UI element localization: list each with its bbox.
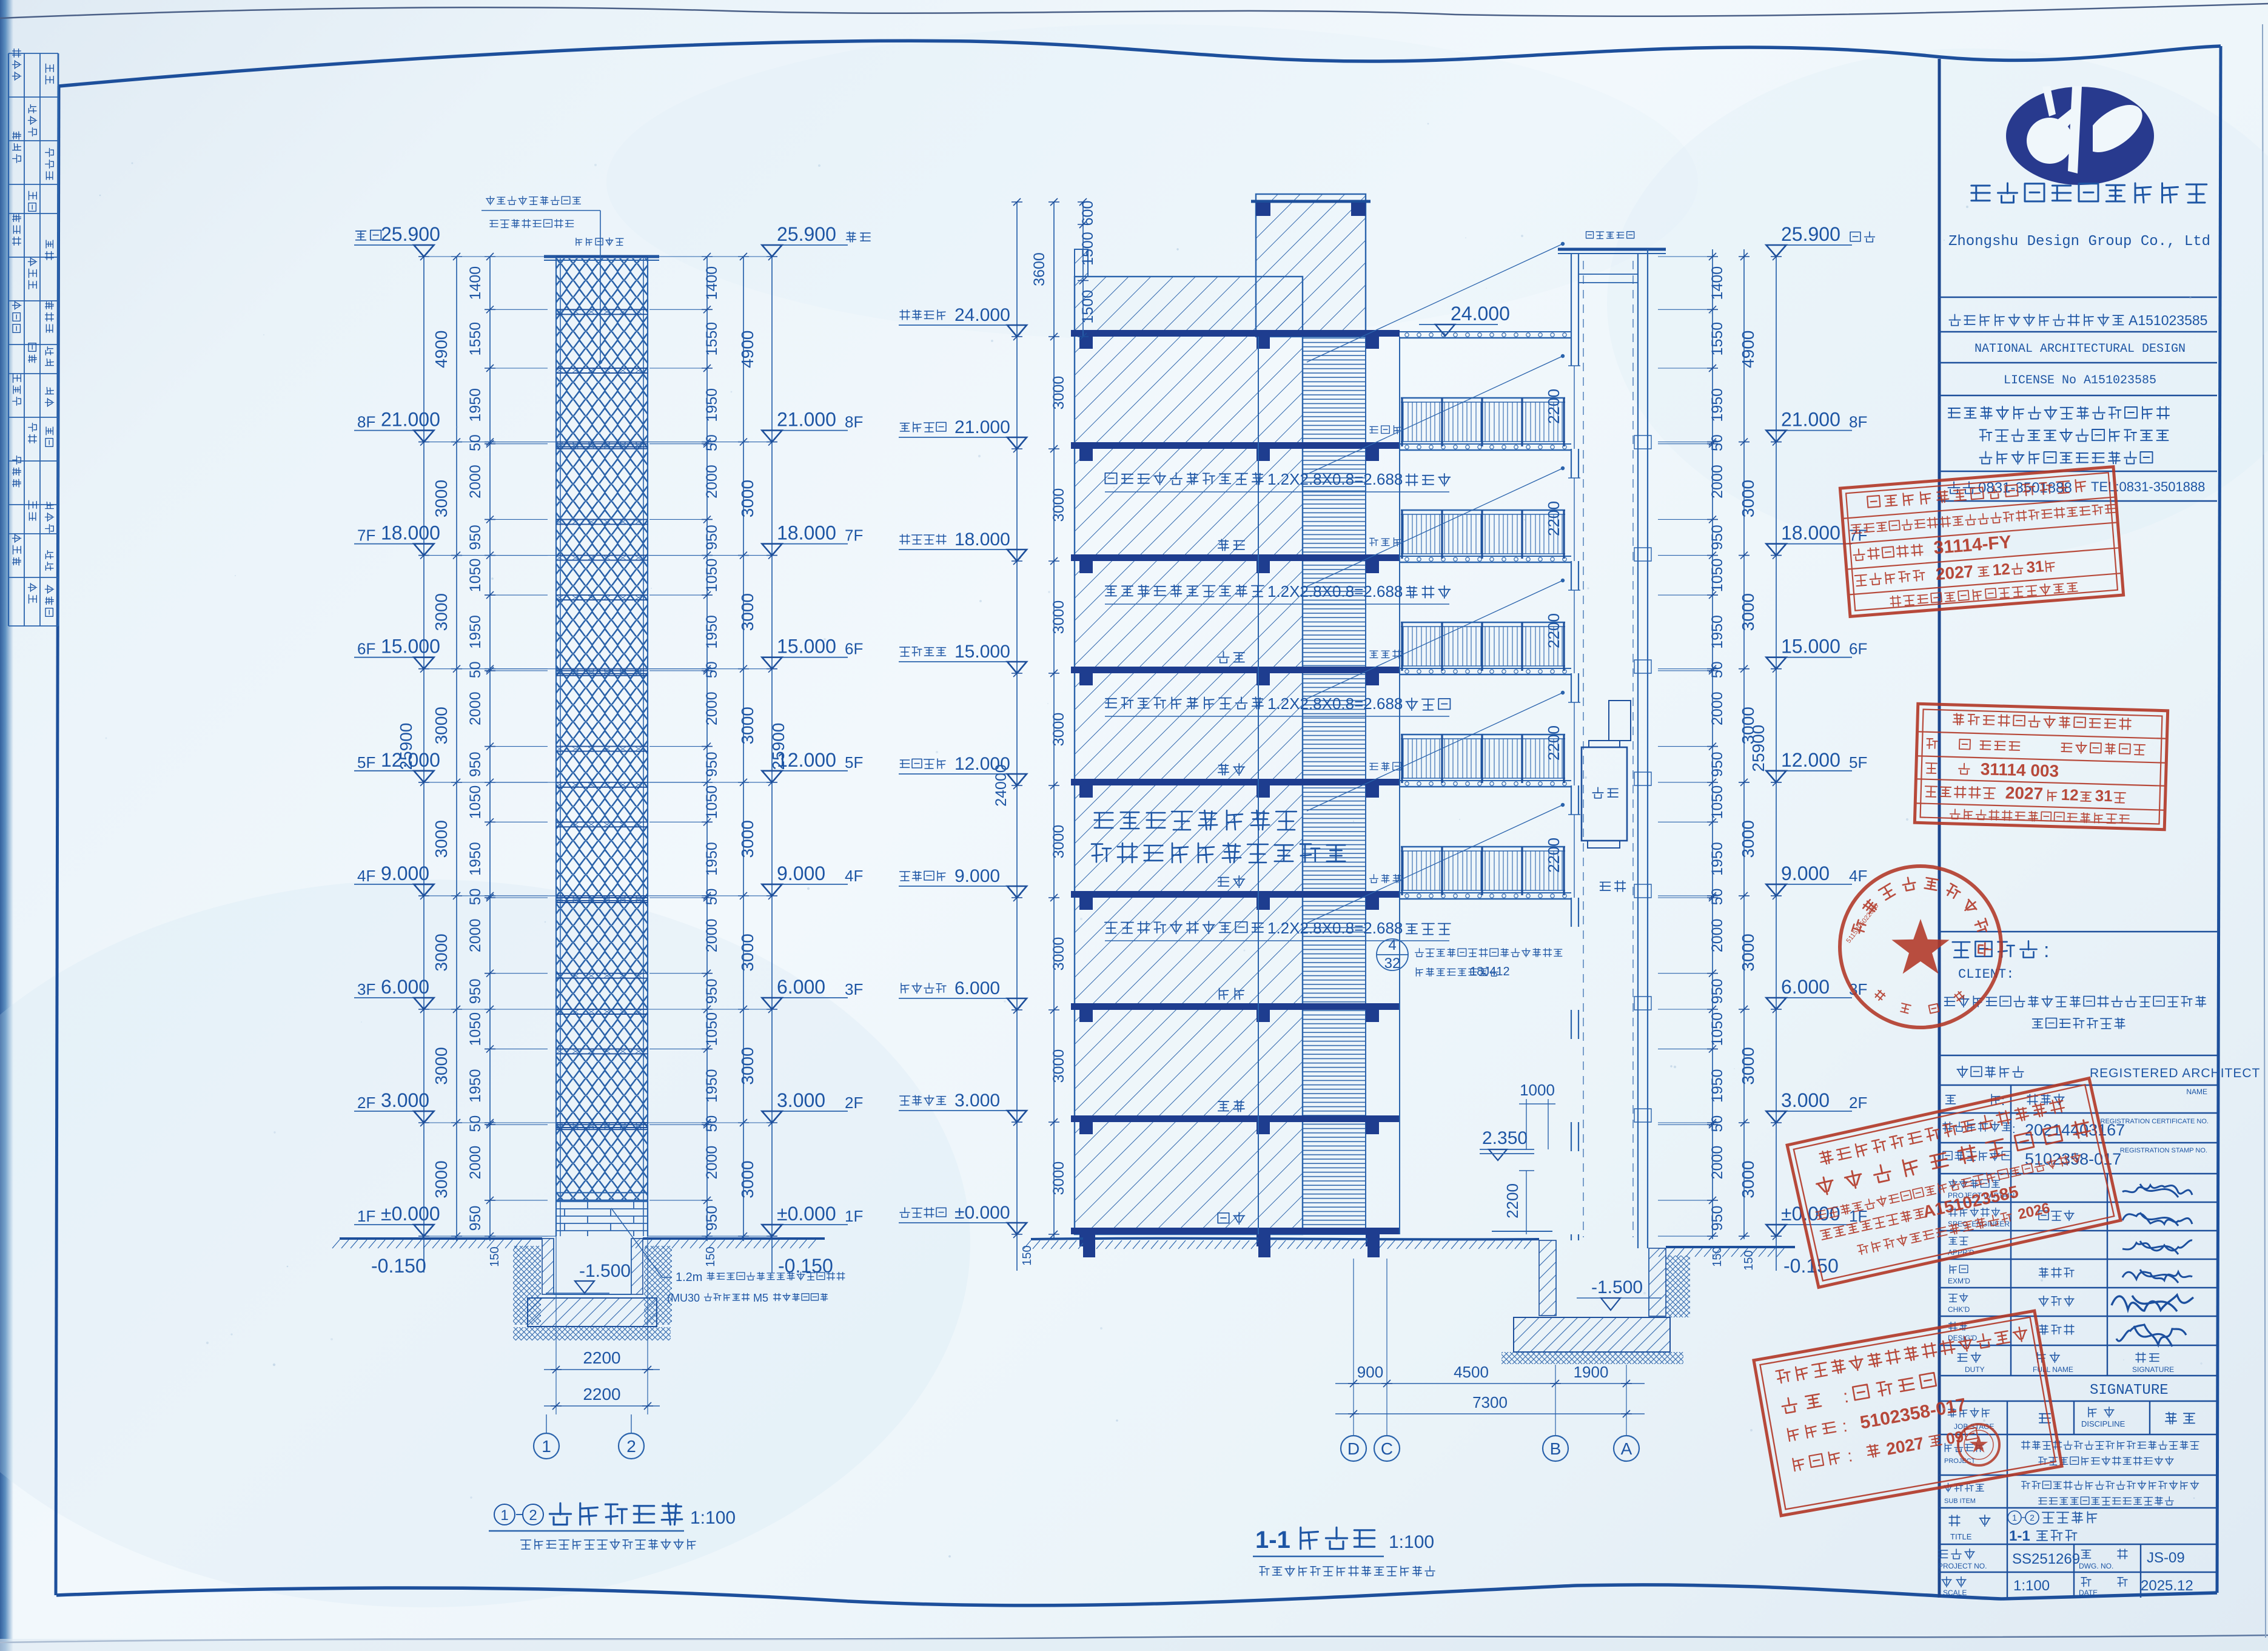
svg-text:1950: 1950 <box>467 388 484 422</box>
svg-text:24.000: 24.000 <box>955 305 1010 325</box>
svg-text:3000: 3000 <box>1050 1049 1067 1083</box>
svg-text:9.000: 9.000 <box>1781 862 1830 884</box>
svg-text:2027: 2027 <box>1885 1433 1925 1458</box>
svg-text:2027: 2027 <box>1935 562 1974 583</box>
svg-text:5F: 5F <box>357 753 375 772</box>
svg-text:8F: 8F <box>845 413 863 431</box>
svg-text:3000: 3000 <box>738 820 757 858</box>
svg-text:2200: 2200 <box>1545 501 1563 536</box>
svg-text:3F: 3F <box>357 980 375 998</box>
svg-text:2: 2 <box>529 1507 537 1524</box>
svg-text:1050: 1050 <box>1709 559 1726 593</box>
svg-text:1400: 1400 <box>1709 266 1726 300</box>
svg-text:12.000: 12.000 <box>1781 749 1840 771</box>
svg-text:21.000: 21.000 <box>777 409 836 431</box>
svg-text:4900: 4900 <box>738 331 757 368</box>
svg-text:DWG. NO.: DWG. NO. <box>2079 1562 2113 1570</box>
svg-text:1050: 1050 <box>1709 1012 1726 1046</box>
svg-text:1:100: 1:100 <box>1389 1532 1434 1552</box>
svg-text:9.000: 9.000 <box>381 862 429 884</box>
svg-text:3.000: 3.000 <box>381 1089 429 1111</box>
svg-text:3F: 3F <box>845 980 863 998</box>
svg-text:50: 50 <box>703 889 720 906</box>
svg-text:JS-09: JS-09 <box>2147 1550 2185 1566</box>
svg-text:6F: 6F <box>357 640 375 658</box>
svg-text:25.900: 25.900 <box>777 223 836 245</box>
svg-text:3000: 3000 <box>432 820 451 858</box>
svg-text:2000: 2000 <box>467 919 484 953</box>
svg-text:1950: 1950 <box>703 615 720 649</box>
svg-text:M5: M5 <box>753 1292 768 1304</box>
svg-text:950: 950 <box>1709 752 1726 777</box>
svg-text:50: 50 <box>1709 889 1726 906</box>
svg-text:1050: 1050 <box>703 785 720 819</box>
svg-text:2F: 2F <box>1849 1094 1867 1112</box>
svg-text:3000: 3000 <box>1739 480 1757 517</box>
svg-text:2000: 2000 <box>467 1146 484 1180</box>
svg-text:2.350: 2.350 <box>1482 1128 1528 1148</box>
svg-text:2000: 2000 <box>703 691 720 725</box>
svg-text:1950: 1950 <box>703 388 720 422</box>
svg-text:NAME: NAME <box>2186 1088 2207 1096</box>
svg-text:4F: 4F <box>357 867 375 885</box>
svg-text:CLIENT:: CLIENT: <box>1958 967 2014 982</box>
svg-text:2000: 2000 <box>703 465 720 499</box>
svg-text:SIGNATURE: SIGNATURE <box>2090 1382 2169 1399</box>
svg-text::: : <box>1840 1416 1848 1436</box>
svg-text:25.900: 25.900 <box>1781 223 1840 245</box>
svg-text:3000: 3000 <box>1050 376 1067 410</box>
svg-text:C: C <box>1381 1439 1393 1458</box>
svg-text:1950: 1950 <box>467 842 484 876</box>
svg-text:SIGNATURE: SIGNATURE <box>2132 1365 2174 1374</box>
svg-text:1050: 1050 <box>1709 785 1726 819</box>
svg-text:15.000: 15.000 <box>381 636 440 657</box>
svg-text:3000: 3000 <box>1050 1162 1067 1195</box>
svg-text:31114 003: 31114 003 <box>1980 759 2059 781</box>
svg-text:(MU30: (MU30 <box>667 1292 700 1304</box>
svg-text:3000: 3000 <box>432 1160 451 1198</box>
svg-text:D: D <box>1347 1439 1360 1458</box>
svg-text:50: 50 <box>1709 661 1726 678</box>
svg-text:1:100: 1:100 <box>2013 1578 2050 1594</box>
svg-text:3000: 3000 <box>432 593 451 631</box>
svg-text:18.000: 18.000 <box>381 522 440 544</box>
svg-text:950: 950 <box>467 525 484 550</box>
svg-text:LICENSE No A151023585: LICENSE No A151023585 <box>2004 374 2156 388</box>
svg-text:2200: 2200 <box>1503 1183 1522 1219</box>
svg-text:2027: 2027 <box>2005 783 2043 803</box>
svg-text:6.000: 6.000 <box>381 976 429 998</box>
svg-text:-1.500: -1.500 <box>579 1261 631 1281</box>
svg-text:1050: 1050 <box>467 1012 484 1046</box>
svg-text:TITLE: TITLE <box>1950 1532 1972 1541</box>
svg-text:1950: 1950 <box>467 1069 484 1103</box>
svg-text:1950: 1950 <box>703 842 720 876</box>
svg-text:3000: 3000 <box>1739 820 1757 858</box>
svg-text:1050: 1050 <box>703 559 720 593</box>
svg-text:1.2m: 1.2m <box>676 1271 702 1284</box>
svg-text:2200: 2200 <box>1545 389 1563 424</box>
svg-text:3000: 3000 <box>432 933 451 971</box>
svg-text:3000: 3000 <box>1050 600 1067 634</box>
svg-text:150: 150 <box>704 1246 717 1266</box>
svg-text:7300: 7300 <box>1472 1393 1508 1411</box>
svg-text:1950: 1950 <box>703 1069 720 1103</box>
svg-text:1.2X2.8X0.8=2.688: 1.2X2.8X0.8=2.688 <box>1267 470 1403 488</box>
svg-text:950: 950 <box>467 978 484 1004</box>
svg-text:9.000: 9.000 <box>955 866 1000 886</box>
svg-text:600: 600 <box>1079 201 1096 226</box>
svg-text:1500: 1500 <box>1079 290 1096 324</box>
svg-text:3.000: 3.000 <box>1781 1089 1830 1111</box>
svg-text:7F: 7F <box>357 526 375 545</box>
svg-text:2000: 2000 <box>1709 691 1726 725</box>
svg-text:50: 50 <box>1709 434 1726 451</box>
svg-text:3000: 3000 <box>738 1160 757 1198</box>
svg-text:TEL:0831-3501888: TEL:0831-3501888 <box>2091 479 2205 494</box>
svg-text:950: 950 <box>703 978 720 1004</box>
svg-text:50: 50 <box>1709 1115 1726 1132</box>
svg-text:4F: 4F <box>845 867 863 885</box>
svg-text:50: 50 <box>703 661 720 678</box>
svg-text:1950: 1950 <box>467 615 484 649</box>
svg-text:1950: 1950 <box>1709 388 1726 422</box>
svg-text:B: B <box>1550 1439 1562 1458</box>
svg-text:1: 1 <box>542 1437 551 1456</box>
svg-text:25.900: 25.900 <box>381 223 440 245</box>
svg-text:3000: 3000 <box>738 593 757 631</box>
svg-text:1550: 1550 <box>467 322 484 356</box>
svg-text:1.2X2.8X0.8=2.688: 1.2X2.8X0.8=2.688 <box>1267 919 1403 937</box>
svg-text:950: 950 <box>467 752 484 777</box>
svg-text:1950: 1950 <box>1709 615 1726 649</box>
svg-text:150: 150 <box>488 1246 502 1266</box>
svg-text:1050: 1050 <box>467 559 484 593</box>
svg-text:50: 50 <box>467 434 484 451</box>
svg-text:2200: 2200 <box>583 1385 620 1404</box>
svg-text:3.000: 3.000 <box>955 1091 1000 1111</box>
svg-text:50: 50 <box>467 889 484 906</box>
svg-text:2000: 2000 <box>1709 1146 1726 1180</box>
svg-text:2000: 2000 <box>1709 465 1726 499</box>
svg-text:1000: 1000 <box>1520 1081 1555 1099</box>
svg-text:A151023585: A151023585 <box>2129 312 2207 328</box>
svg-text:7F: 7F <box>845 526 863 545</box>
svg-text:NATIONAL ARCHITECTURAL DESIGN: NATIONAL ARCHITECTURAL DESIGN <box>1974 342 2186 356</box>
svg-text:2200: 2200 <box>583 1348 620 1367</box>
svg-text:15.000: 15.000 <box>955 642 1010 662</box>
svg-text:21.000: 21.000 <box>955 417 1010 437</box>
svg-text:3000: 3000 <box>738 1047 757 1084</box>
svg-text:4F: 4F <box>1849 867 1867 885</box>
svg-text:1F: 1F <box>845 1207 863 1225</box>
svg-text:1050: 1050 <box>467 785 484 819</box>
svg-text:09: 09 <box>1945 1427 1965 1448</box>
svg-text:950: 950 <box>467 1206 484 1231</box>
svg-text:DISCIPLINE: DISCIPLINE <box>2081 1419 2125 1428</box>
svg-text:REGISTRATION STAMP NO.: REGISTRATION STAMP NO. <box>2120 1147 2207 1154</box>
svg-text:15.000: 15.000 <box>1781 636 1840 657</box>
svg-text:50: 50 <box>703 434 720 451</box>
svg-text:31: 31 <box>2095 787 2113 805</box>
svg-text:31: 31 <box>2025 557 2044 576</box>
svg-text::: : <box>2001 1093 2005 1108</box>
svg-text:8F: 8F <box>1849 413 1867 431</box>
svg-text:DUTY: DUTY <box>1965 1365 1985 1374</box>
svg-text:9.000: 9.000 <box>777 862 825 884</box>
svg-text:2200: 2200 <box>1545 838 1563 873</box>
svg-text:2000: 2000 <box>703 919 720 953</box>
svg-text:150: 150 <box>1742 1250 1756 1270</box>
svg-text:12: 12 <box>1992 560 2011 579</box>
svg-text::: : <box>2044 939 2049 962</box>
svg-text:50: 50 <box>467 1115 484 1132</box>
svg-text:2F: 2F <box>357 1094 375 1112</box>
svg-text:12.000: 12.000 <box>777 749 836 771</box>
svg-text:3000: 3000 <box>1739 933 1757 971</box>
svg-text:6.000: 6.000 <box>955 978 1000 998</box>
svg-text:21.000: 21.000 <box>381 409 440 431</box>
svg-text:24.000: 24.000 <box>1451 303 1510 324</box>
svg-text:1900: 1900 <box>1574 1363 1609 1381</box>
svg-text:3000: 3000 <box>1739 593 1757 631</box>
svg-text:1400: 1400 <box>467 266 484 300</box>
svg-text:2000: 2000 <box>703 1146 720 1180</box>
svg-text:1.2X2.8X0.8=2.688: 1.2X2.8X0.8=2.688 <box>1267 694 1403 713</box>
svg-text:4900: 4900 <box>1739 331 1757 368</box>
svg-text:3000: 3000 <box>1739 1047 1757 1084</box>
svg-text:4500: 4500 <box>1454 1363 1489 1381</box>
svg-text::: : <box>1842 1387 1850 1407</box>
svg-text:3000: 3000 <box>1050 825 1067 859</box>
svg-text:3000: 3000 <box>1050 488 1067 522</box>
svg-text:18.000: 18.000 <box>777 522 836 544</box>
svg-text:-0.150: -0.150 <box>371 1255 426 1277</box>
svg-text:3000: 3000 <box>1050 937 1067 971</box>
svg-text:A: A <box>1621 1439 1632 1458</box>
svg-text:6F: 6F <box>1849 640 1867 658</box>
svg-text:4900: 4900 <box>432 331 451 368</box>
svg-text:DATE: DATE <box>2079 1589 2098 1597</box>
svg-text:SCALE: SCALE <box>1943 1589 1967 1597</box>
svg-text:3000: 3000 <box>432 1047 451 1084</box>
svg-text::: : <box>1846 1446 1854 1465</box>
svg-text:2000: 2000 <box>1709 919 1726 953</box>
svg-text:5F: 5F <box>845 753 863 772</box>
svg-text:15.000: 15.000 <box>777 636 836 657</box>
svg-text:3000: 3000 <box>738 707 757 744</box>
svg-text:6.000: 6.000 <box>1781 976 1830 998</box>
svg-text:±0.000: ±0.000 <box>955 1203 1010 1223</box>
svg-text:18.000: 18.000 <box>1781 522 1840 544</box>
svg-text:Zhongshu Design Group Co., Ltd: Zhongshu Design Group Co., Ltd <box>1948 234 2210 250</box>
svg-text:50: 50 <box>467 661 484 678</box>
svg-text:3000: 3000 <box>432 480 451 517</box>
svg-text:950: 950 <box>703 525 720 550</box>
svg-text:12.000: 12.000 <box>381 749 440 771</box>
svg-text:3600: 3600 <box>1031 252 1048 286</box>
svg-text:2200: 2200 <box>1545 613 1563 648</box>
svg-text:SUB ITEM: SUB ITEM <box>1944 1498 1976 1505</box>
svg-text:REGISTRATION CERTIFICATE NO.: REGISTRATION CERTIFICATE NO. <box>2101 1118 2209 1125</box>
svg-text:950: 950 <box>1709 525 1726 550</box>
svg-text:8F: 8F <box>357 413 375 431</box>
svg-text:950: 950 <box>1709 1206 1726 1231</box>
svg-text:1: 1 <box>500 1507 508 1524</box>
svg-text:3000: 3000 <box>738 480 757 517</box>
svg-text:1: 1 <box>2012 1513 2017 1522</box>
svg-text:150: 150 <box>1711 1246 1724 1266</box>
svg-text:1-1: 1-1 <box>1255 1527 1290 1553</box>
svg-text:REGISTERED ARCHITECT: REGISTERED ARCHITECT <box>2090 1066 2260 1080</box>
svg-text:3000: 3000 <box>432 707 451 744</box>
svg-text:12: 12 <box>2061 785 2079 804</box>
svg-text:18.000: 18.000 <box>955 530 1010 550</box>
svg-text:±0.000: ±0.000 <box>381 1203 440 1225</box>
svg-text:PROJECT NO.: PROJECT NO. <box>1938 1562 1987 1570</box>
svg-text:1550: 1550 <box>703 322 720 356</box>
svg-text:EXM'D: EXM'D <box>1948 1277 1970 1285</box>
svg-text:950: 950 <box>703 1206 720 1231</box>
svg-text:1050: 1050 <box>703 1012 720 1046</box>
svg-text:18J412: 18J412 <box>1470 965 1510 978</box>
svg-text:900: 900 <box>1357 1363 1383 1381</box>
svg-text:A151023585: A151023585 <box>1921 1182 2020 1222</box>
svg-text:3.000: 3.000 <box>777 1089 825 1111</box>
svg-text:CHK'D: CHK'D <box>1948 1305 1970 1314</box>
svg-text:1950: 1950 <box>1709 1069 1726 1103</box>
svg-text:12.000: 12.000 <box>955 754 1010 774</box>
svg-text:950: 950 <box>1709 978 1726 1004</box>
svg-text:32: 32 <box>1384 955 1401 972</box>
svg-text:3000: 3000 <box>1050 713 1067 747</box>
svg-text:6.000: 6.000 <box>777 976 825 998</box>
svg-text:1-1: 1-1 <box>2009 1528 2030 1544</box>
svg-text:50: 50 <box>703 1115 720 1132</box>
svg-text:3000: 3000 <box>1739 1160 1757 1198</box>
svg-text:1400: 1400 <box>703 266 720 300</box>
svg-text:2200: 2200 <box>1545 725 1563 761</box>
svg-text:2025.12: 2025.12 <box>2141 1578 2193 1594</box>
svg-text:-1.500: -1.500 <box>1591 1277 1643 1297</box>
svg-text:2000: 2000 <box>467 691 484 725</box>
svg-text:150: 150 <box>1021 1245 1034 1265</box>
svg-text:SS251269: SS251269 <box>2012 1551 2080 1567</box>
svg-text:2: 2 <box>626 1437 636 1456</box>
svg-text:4: 4 <box>1388 937 1396 953</box>
svg-text:±0.000: ±0.000 <box>1781 1203 1840 1225</box>
svg-text:2000: 2000 <box>467 465 484 499</box>
svg-text:950: 950 <box>703 752 720 777</box>
svg-text:2F: 2F <box>845 1094 863 1112</box>
svg-text:1550: 1550 <box>1709 322 1726 356</box>
svg-text:5102358-017: 5102358-017 <box>1859 1394 1968 1433</box>
svg-text::: : <box>2012 1123 2016 1136</box>
svg-text:5F: 5F <box>1849 753 1867 772</box>
svg-text:1:100: 1:100 <box>690 1508 736 1528</box>
svg-text:1950: 1950 <box>1709 842 1726 876</box>
svg-text:1F: 1F <box>357 1207 375 1225</box>
svg-text:±0.000: ±0.000 <box>777 1203 836 1225</box>
svg-text:1.2X2.8X0.8=2.688: 1.2X2.8X0.8=2.688 <box>1267 582 1403 600</box>
svg-text:25900: 25900 <box>1749 725 1768 772</box>
svg-text:21.000: 21.000 <box>1781 409 1840 431</box>
svg-text:3000: 3000 <box>738 933 757 971</box>
svg-text:6F: 6F <box>845 640 863 658</box>
svg-text:1500: 1500 <box>1079 232 1096 266</box>
svg-text:2: 2 <box>2030 1513 2035 1522</box>
